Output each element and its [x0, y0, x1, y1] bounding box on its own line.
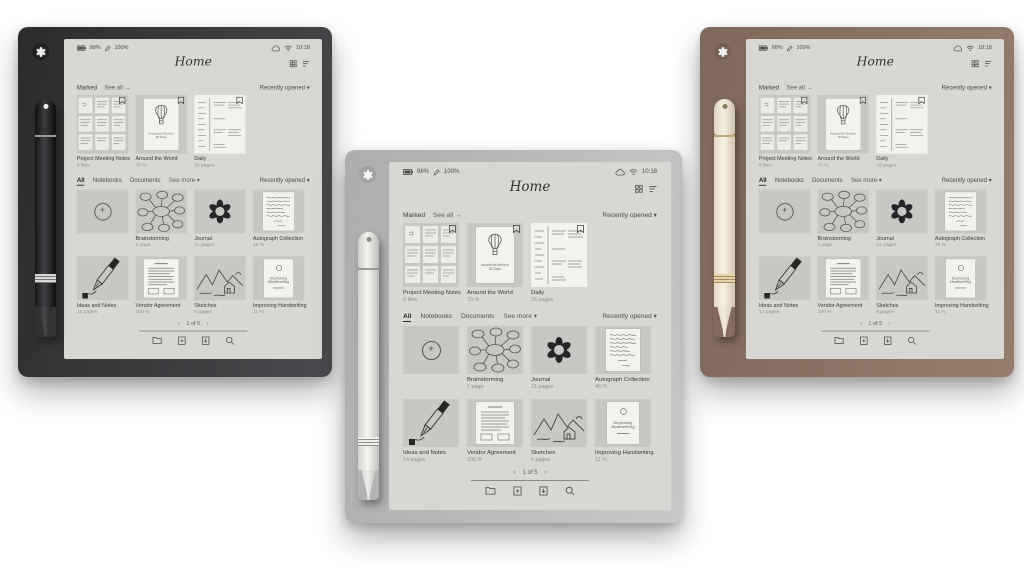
clock: 10:18 [978, 45, 992, 51]
cloud-sync-icon [271, 45, 280, 51]
library-sort-dropdown[interactable]: Recently opened ▾ [260, 177, 310, 184]
status-bar: 98% 100% 10:18 [389, 162, 671, 176]
handwriting-sketch [606, 329, 640, 371]
see-more-dropdown[interactable]: See more ▾ [851, 177, 882, 184]
doc-card-brainstorming[interactable]: Brainstorming 1 page [818, 189, 869, 248]
pen-tip [35, 307, 56, 337]
mind-map-sketch [467, 326, 523, 374]
stylus-black [35, 99, 56, 337]
snowcap-star-icon [36, 47, 46, 57]
improving-handwriting-page: Improving Handwriting [264, 259, 293, 298]
stylus-white [358, 232, 379, 500]
pen-battery-level: 100% [444, 169, 459, 175]
brand-emblem [714, 43, 731, 60]
sort-list-icon[interactable] [649, 185, 657, 193]
pen-cap [35, 99, 56, 135]
page-prev-button[interactable]: ‹ [178, 321, 180, 327]
doc-card-brainstorming[interactable]: Brainstorming 1 page [136, 189, 187, 248]
bookmark-flag-icon [918, 97, 924, 104]
cloud-sync-icon [615, 169, 625, 176]
toolbar-divider [821, 331, 929, 332]
library-grid: + [759, 189, 992, 315]
hot-air-balloon-sketch [152, 103, 170, 127]
page-next-button[interactable]: › [889, 321, 891, 327]
doc-card-autograph-collection[interactable]: Autograph Collection 46 % [595, 326, 651, 390]
contract-page [476, 402, 514, 444]
doc-card-ideas-and-notes[interactable]: Ideas and Notes 14 pages [759, 256, 810, 315]
pen-cap [358, 232, 379, 268]
snowcap-star-logo [890, 199, 914, 223]
see-all-link[interactable]: See all → [433, 212, 462, 219]
tab-notebooks[interactable]: Notebooks [775, 177, 804, 183]
tab-notebooks[interactable]: Notebooks [420, 313, 452, 320]
improving-handwriting-page: Improving Handwriting [946, 259, 975, 298]
page-prev-button[interactable]: ‹ [860, 321, 862, 327]
folder-icon[interactable] [834, 336, 844, 344]
status-bar: 98% 100% 10:18 [64, 39, 322, 52]
landscape-sketch [876, 256, 927, 300]
improving-caption: Improving Handwriting [946, 276, 975, 285]
sort-list-icon[interactable] [302, 60, 309, 67]
tablet-silver: 98% 100% 10:18 [345, 150, 682, 523]
signature-line [955, 287, 966, 288]
contract-text-sketch [476, 402, 514, 444]
balloon-page-caption: Around the World in 80 Days [826, 132, 861, 140]
doc-card-journal[interactable]: Journal 21 pages [194, 189, 245, 248]
page-next-button[interactable]: › [207, 321, 209, 327]
doc-card-journal[interactable]: Journal 21 pages [531, 326, 587, 390]
page-indicator: 1 of 5 [868, 321, 882, 327]
pen-battery-level: 100% [796, 45, 810, 51]
bookmark-flag-icon [860, 97, 866, 104]
fountain-pen-sketch [77, 256, 128, 300]
bookmark-flag-icon [236, 97, 242, 104]
doc-card-improving-handwriting[interactable]: Improving Handwriting Improving Handwrit… [595, 399, 651, 463]
contract-text-sketch [826, 259, 861, 298]
doc-card-daily[interactable]: Daily 26 pages [531, 223, 587, 303]
autograph-page [263, 192, 294, 231]
hot-air-balloon-sketch [485, 232, 505, 258]
home-screen: 98% 100% 10:18 [389, 162, 671, 510]
pen-battery-level: 100% [114, 45, 128, 51]
handwriting-sketch [263, 192, 294, 231]
marked-header: Marked See all → Recently opened ▾ [77, 84, 310, 91]
see-more-dropdown[interactable]: See more ▾ [503, 312, 537, 320]
improving-caption: Improving Handwriting [264, 276, 293, 285]
battery-icon [403, 169, 413, 175]
page-title: Home [389, 179, 671, 195]
doc-card-brainstorming[interactable]: Brainstorming 1 page [467, 326, 523, 390]
fountain-pen-sketch [759, 256, 810, 300]
page-indicator: 1 of 5 [522, 470, 537, 476]
fountain-pen-sketch [403, 399, 459, 447]
doc-card-daily[interactable]: Daily 26 pages [194, 95, 245, 168]
plus-icon: + [776, 203, 793, 220]
bookmark-flag-icon [513, 225, 520, 233]
balloon-page: Around the World in 80 Days [144, 99, 179, 150]
see-all-link[interactable]: See all → [786, 85, 812, 91]
battery-level: 98% [417, 169, 429, 175]
page-title: Home [746, 55, 1004, 70]
battery-level: 98% [90, 45, 101, 51]
new-notebook-icon[interactable] [860, 336, 868, 345]
pen-battery-icon [104, 45, 110, 51]
library-header: All Notebooks Documents See more ▾ Recen… [403, 312, 657, 322]
autograph-page [606, 329, 640, 371]
plus-icon: + [94, 203, 111, 220]
marked-sort-dropdown[interactable]: Recently opened ▾ [260, 84, 310, 91]
marked-cards: Project Meeting Notes 8 files [77, 95, 310, 168]
wifi-icon [966, 45, 974, 52]
doc-card-around-the-world[interactable]: Around the World in 80 Days Around the W… [136, 95, 187, 168]
doc-card-vendor-agreement[interactable]: Vendor Agreement 100 % [136, 256, 187, 315]
pen-tip [358, 470, 379, 500]
page-next-button[interactable]: › [545, 470, 547, 476]
marked-sort-dropdown[interactable]: Recently opened ▾ [602, 211, 657, 219]
balloon-page: Around the World in 80 Days [826, 99, 861, 150]
doc-card-sketches[interactable]: Sketches 6 pages [531, 399, 587, 463]
status-bar: 98% 100% 10:18 [746, 39, 1004, 52]
plus-icon: + [422, 341, 441, 360]
clock: 10:18 [642, 169, 657, 175]
doc-card-sketches[interactable]: Sketches 6 pages [194, 256, 245, 315]
new-notebook-icon[interactable] [513, 486, 522, 496]
brand-emblem [32, 43, 49, 60]
doc-card-vendor-agreement[interactable]: Vendor Agreement 100 % [818, 256, 869, 315]
doc-card-improving-handwriting[interactable]: Improving Handwriting Improving Handwrit… [253, 256, 304, 315]
tab-all[interactable]: All [77, 177, 85, 185]
doc-card-around-the-world[interactable]: Around the World in 80 Days Around the W… [467, 223, 523, 303]
bookmark-flag-icon [449, 225, 456, 233]
handwriting-sketch [945, 192, 976, 231]
marked-label: Marked [403, 212, 425, 219]
tab-documents[interactable]: Documents [812, 177, 843, 183]
balloon-page-caption: Around the World in 80 Days [476, 263, 514, 271]
bottom-toolbar [746, 336, 1004, 345]
page-prev-button[interactable]: ‹ [513, 470, 515, 476]
folder-icon[interactable] [152, 336, 162, 344]
pen-rings [714, 274, 735, 283]
clock: 10:18 [296, 45, 310, 51]
library-sort-dropdown[interactable]: Recently opened ▾ [942, 177, 992, 184]
new-notebook-tile[interactable]: + [759, 189, 810, 248]
doc-card-vendor-agreement[interactable]: Vendor Agreement 100 % [467, 399, 523, 463]
library-grid: + [77, 189, 310, 315]
doc-card-project-meeting-notes[interactable]: Project Meeting Notes 8 files [759, 95, 810, 168]
new-notebook-icon[interactable] [178, 336, 186, 345]
library-grid: + [403, 326, 657, 463]
snowcap-star-logo [620, 408, 627, 415]
contract-text-sketch [144, 259, 179, 298]
see-all-link[interactable]: See all → [104, 85, 130, 91]
snowcap-star-logo [957, 265, 963, 271]
home-screen: 98% 100% 10:18 [64, 39, 322, 358]
screen: 98% 100% 10:18 [746, 39, 1004, 359]
new-notebook-tile[interactable]: + [77, 189, 128, 248]
import-icon[interactable] [202, 336, 210, 345]
sort-list-icon[interactable] [984, 60, 991, 67]
marked-header: Marked See all → Recently opened ▾ [759, 84, 992, 91]
tablet-black: 98% 100% 10:18 [18, 27, 332, 377]
bookmark-flag-icon [178, 97, 184, 104]
marked-cards: Project Meeting Notes 8 files [403, 223, 657, 303]
tab-documents[interactable]: Documents [130, 177, 161, 183]
stylus-cream [714, 99, 735, 337]
doc-card-daily[interactable]: Daily 26 pages [876, 95, 927, 168]
signature-line [617, 433, 629, 434]
pen-rings [358, 437, 379, 446]
autograph-page [945, 192, 976, 231]
mind-map-sketch [136, 189, 187, 233]
search-icon[interactable] [565, 486, 575, 496]
import-icon[interactable] [884, 336, 892, 345]
wifi-icon [284, 45, 292, 52]
battery-level: 98% [772, 45, 783, 51]
snowcap-star-icon [718, 47, 728, 57]
doc-card-journal[interactable]: Journal 21 pages [876, 189, 927, 248]
bottom-toolbar [389, 486, 671, 496]
doc-card-autograph-collection[interactable]: Autograph Collection 46 % [935, 189, 986, 248]
pen-emblem [43, 104, 48, 109]
doc-card-autograph-collection[interactable]: Autograph Collection 46 % [253, 189, 304, 248]
library-header: All Notebooks Documents See more ▾ Recen… [77, 177, 310, 186]
doc-card-project-meeting-notes[interactable]: Project Meeting Notes 8 files [77, 95, 128, 168]
contract-page [144, 259, 179, 298]
marked-label: Marked [759, 85, 779, 91]
bookmark-flag-icon [119, 97, 125, 104]
tab-all[interactable]: All [759, 177, 767, 185]
snowcap-star-icon [363, 170, 373, 180]
tablet-brown: 98% 100% 10:18 [700, 27, 1014, 377]
balloon-page-caption: Around the World in 80 Days [144, 132, 179, 140]
bookmark-flag-icon [801, 97, 807, 104]
grid-view-icon[interactable] [290, 60, 297, 67]
grid-view-icon[interactable] [635, 185, 643, 193]
tab-all[interactable]: All [403, 313, 411, 322]
brand-emblem [359, 166, 376, 183]
tab-documents[interactable]: Documents [461, 313, 494, 320]
pen-cap [714, 99, 735, 135]
screen: 98% 100% 10:18 [64, 39, 322, 359]
doc-card-ideas-and-notes[interactable]: Ideas and Notes 14 pages [403, 399, 459, 463]
improving-handwriting-page: Improving Handwriting [607, 402, 639, 444]
toolbar-divider [471, 480, 589, 481]
pagination: ‹ 1 of 5 › [389, 470, 671, 476]
doc-card-improving-handwriting[interactable]: Improving Handwriting Improving Handwrit… [935, 256, 986, 315]
pen-emblem [366, 237, 371, 242]
import-icon[interactable] [539, 486, 548, 496]
landscape-sketch [531, 399, 587, 447]
pen-tip [714, 307, 735, 337]
new-notebook-tile[interactable]: + [403, 326, 459, 390]
home-screen: 98% 100% 10:18 [746, 39, 1004, 358]
pen-battery-icon [433, 169, 440, 176]
marked-sort-dropdown[interactable]: Recently opened ▾ [942, 84, 992, 91]
doc-card-project-meeting-notes[interactable]: Project Meeting Notes 8 files [403, 223, 459, 303]
marked-header: Marked See all → Recently opened ▾ [403, 211, 657, 219]
battery-icon [77, 45, 86, 51]
pagination: ‹ 1 of 5 › [746, 321, 1004, 327]
marked-label: Marked [77, 85, 97, 91]
contract-page [826, 259, 861, 298]
hot-air-balloon-sketch [834, 103, 852, 127]
pen-rings [35, 274, 56, 283]
marked-cards: Project Meeting Notes 8 files [759, 95, 992, 168]
wifi-icon [629, 168, 638, 176]
grid-view-icon[interactable] [972, 60, 979, 67]
pen-emblem [722, 104, 727, 109]
pagination: ‹ 1 of 5 › [64, 321, 322, 327]
mind-map-sketch [818, 189, 869, 233]
improving-caption: Improving Handwriting [607, 420, 639, 430]
library-sort-dropdown[interactable]: Recently opened ▾ [602, 312, 657, 320]
library-header: All Notebooks Documents See more ▾ Recen… [759, 177, 992, 186]
folder-icon[interactable] [485, 486, 496, 495]
snowcap-star-logo [275, 265, 281, 271]
see-more-dropdown[interactable]: See more ▾ [169, 177, 200, 184]
signature-line [273, 287, 284, 288]
screen: 98% 100% 10:18 [389, 162, 671, 510]
pen-battery-icon [786, 45, 792, 51]
doc-card-around-the-world[interactable]: Around the World in 80 Days Around the W… [818, 95, 869, 168]
bookmark-flag-icon [577, 225, 584, 233]
balloon-page: Around the World in 80 Days [476, 227, 514, 283]
toolbar-divider [139, 331, 247, 332]
snowcap-star-logo [546, 337, 572, 363]
search-icon[interactable] [907, 336, 916, 345]
cloud-sync-icon [953, 45, 962, 51]
landscape-sketch [194, 256, 245, 300]
battery-icon [759, 45, 768, 51]
tab-notebooks[interactable]: Notebooks [93, 177, 122, 183]
page-title: Home [64, 55, 322, 70]
doc-card-sketches[interactable]: Sketches 6 pages [876, 256, 927, 315]
doc-card-ideas-and-notes[interactable]: Ideas and Notes 14 pages [77, 256, 128, 315]
bottom-toolbar [64, 336, 322, 345]
search-icon[interactable] [225, 336, 234, 345]
snowcap-star-logo [208, 199, 232, 223]
page-indicator: 1 of 5 [186, 321, 200, 327]
